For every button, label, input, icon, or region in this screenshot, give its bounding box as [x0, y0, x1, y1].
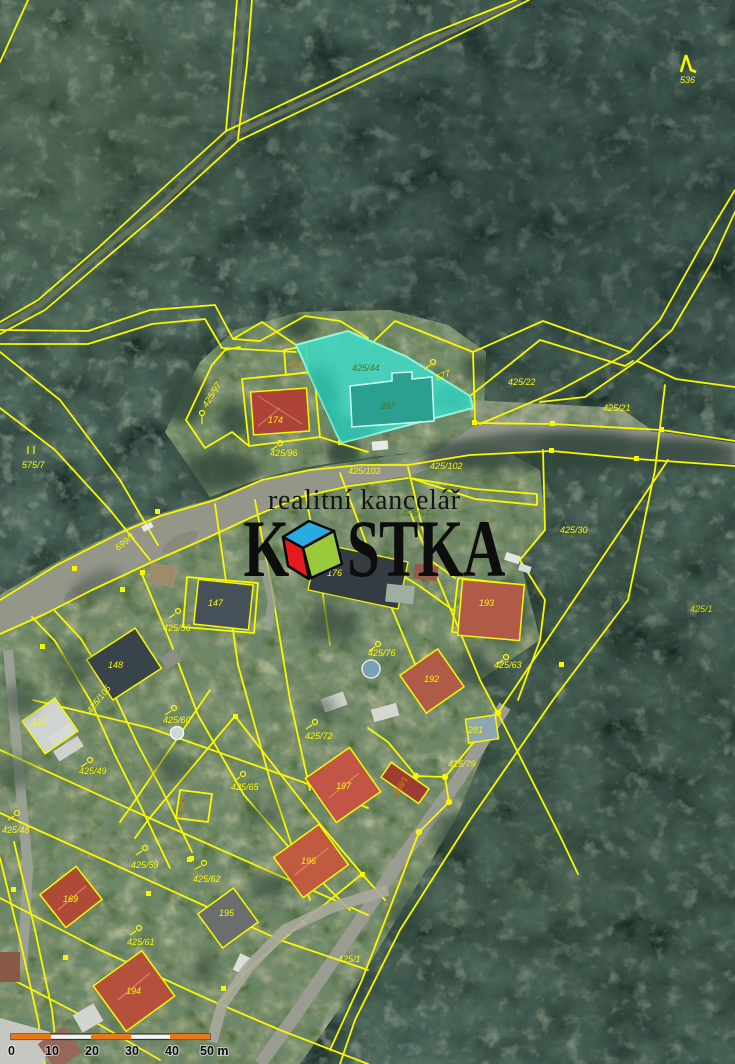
svg-text:20: 20 [85, 1044, 99, 1058]
svg-text:10: 10 [45, 1044, 59, 1058]
svg-text:425/102: 425/102 [430, 461, 463, 471]
svg-text:174: 174 [268, 415, 283, 425]
svg-text:425/1: 425/1 [690, 604, 713, 614]
svg-text:425/62: 425/62 [193, 874, 221, 884]
svg-text:575/7: 575/7 [22, 460, 46, 470]
svg-text:425/61: 425/61 [127, 937, 155, 947]
svg-text:193: 193 [479, 598, 494, 608]
svg-text:196: 196 [301, 856, 316, 866]
svg-text:397: 397 [380, 401, 396, 411]
svg-text:K: K [243, 504, 289, 595]
svg-text:281: 281 [467, 725, 483, 735]
svg-text:464: 464 [288, 359, 303, 369]
svg-text:425/72: 425/72 [305, 731, 333, 741]
svg-text:425/103: 425/103 [348, 466, 381, 476]
svg-text:169: 169 [63, 894, 78, 904]
svg-text:425/49: 425/49 [79, 766, 107, 776]
svg-text:425/63: 425/63 [494, 660, 522, 670]
svg-text:425/79: 425/79 [448, 759, 476, 769]
svg-text:425/56: 425/56 [163, 623, 191, 633]
svg-text:425/65: 425/65 [231, 782, 260, 792]
svg-text:425/21: 425/21 [603, 403, 631, 413]
svg-text:148: 148 [108, 660, 123, 670]
svg-text:147: 147 [208, 598, 224, 608]
svg-text:STKA: STKA [347, 504, 506, 595]
svg-text:425/60: 425/60 [163, 715, 191, 725]
svg-text:192: 192 [424, 674, 439, 684]
svg-text:425/1: 425/1 [338, 954, 361, 964]
svg-text:40: 40 [165, 1044, 179, 1058]
svg-text:30: 30 [125, 1044, 139, 1058]
svg-text:425/22: 425/22 [508, 377, 536, 387]
svg-text:425/30: 425/30 [560, 525, 588, 535]
svg-text:195: 195 [219, 908, 235, 918]
svg-text:197: 197 [336, 781, 352, 791]
svg-text:425/44: 425/44 [352, 363, 380, 373]
svg-text:425/59: 425/59 [131, 860, 159, 870]
svg-text:0: 0 [8, 1044, 15, 1058]
svg-text:536: 536 [680, 75, 695, 85]
svg-text:425/48: 425/48 [2, 825, 30, 835]
svg-text:50 m: 50 m [200, 1044, 229, 1058]
svg-text:125: 125 [32, 717, 48, 727]
svg-text:425/96: 425/96 [270, 448, 298, 458]
svg-text:194: 194 [126, 986, 141, 996]
